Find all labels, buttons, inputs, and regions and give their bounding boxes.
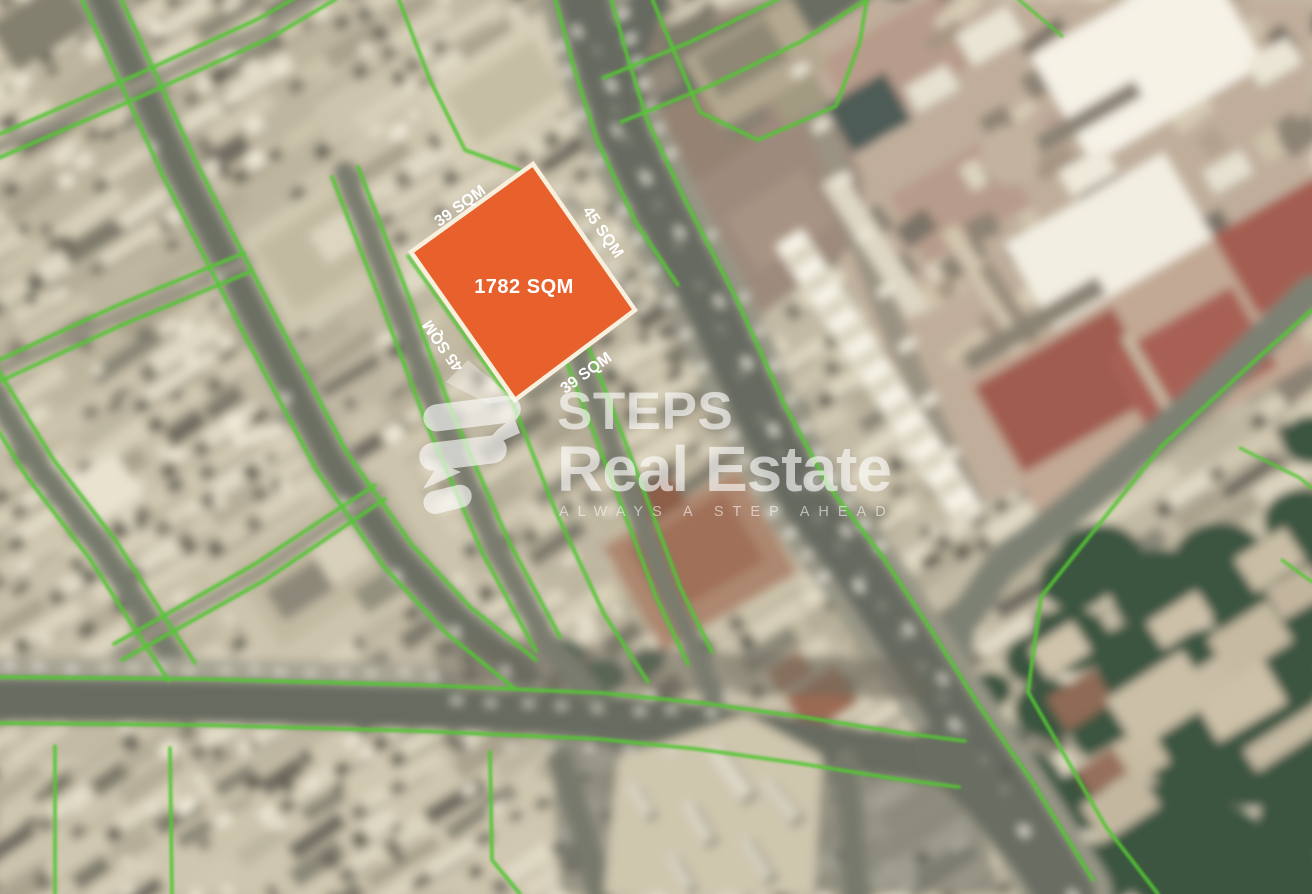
svg-text:ALWAYS A STEP AHEAD: ALWAYS A STEP AHEAD [559,504,895,520]
svg-text:1782 SQM: 1782 SQM [474,276,574,298]
svg-text:Real Estate: Real Estate [557,433,891,505]
